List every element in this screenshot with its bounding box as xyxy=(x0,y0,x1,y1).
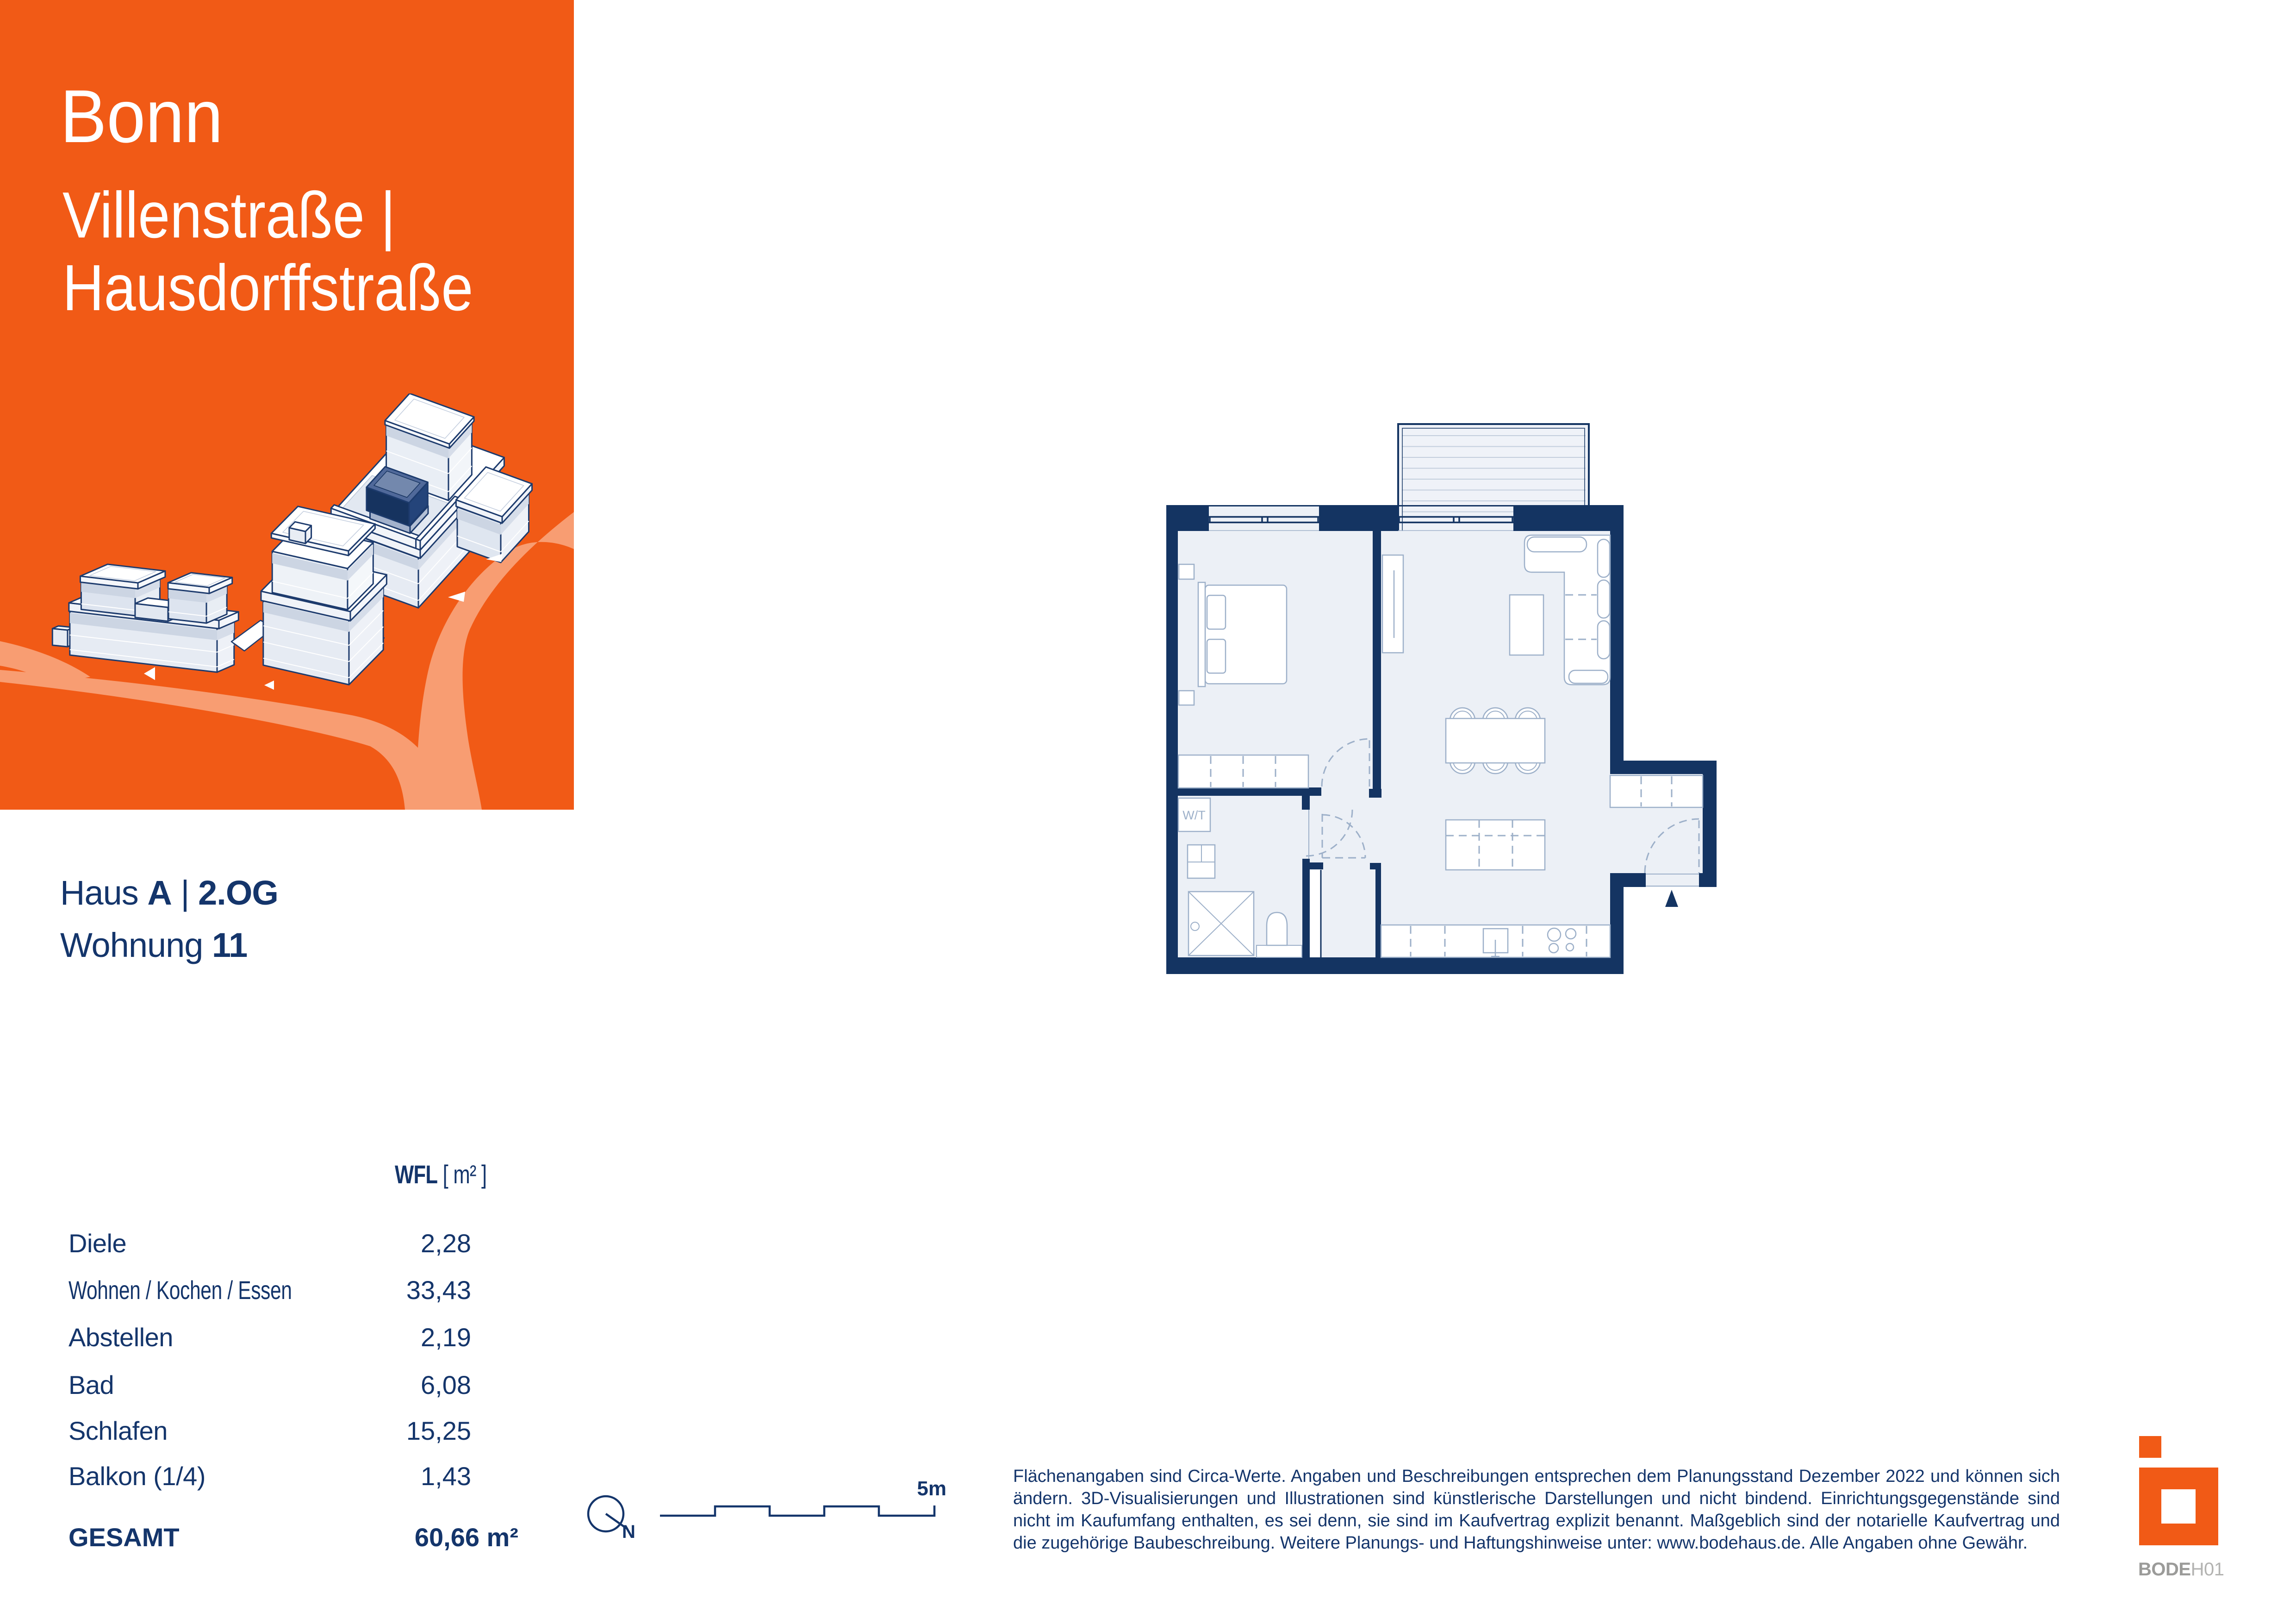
svg-text:5m: 5m xyxy=(917,1477,946,1500)
svg-text:W/T: W/T xyxy=(1182,808,1205,822)
svg-text:N: N xyxy=(622,1522,635,1542)
